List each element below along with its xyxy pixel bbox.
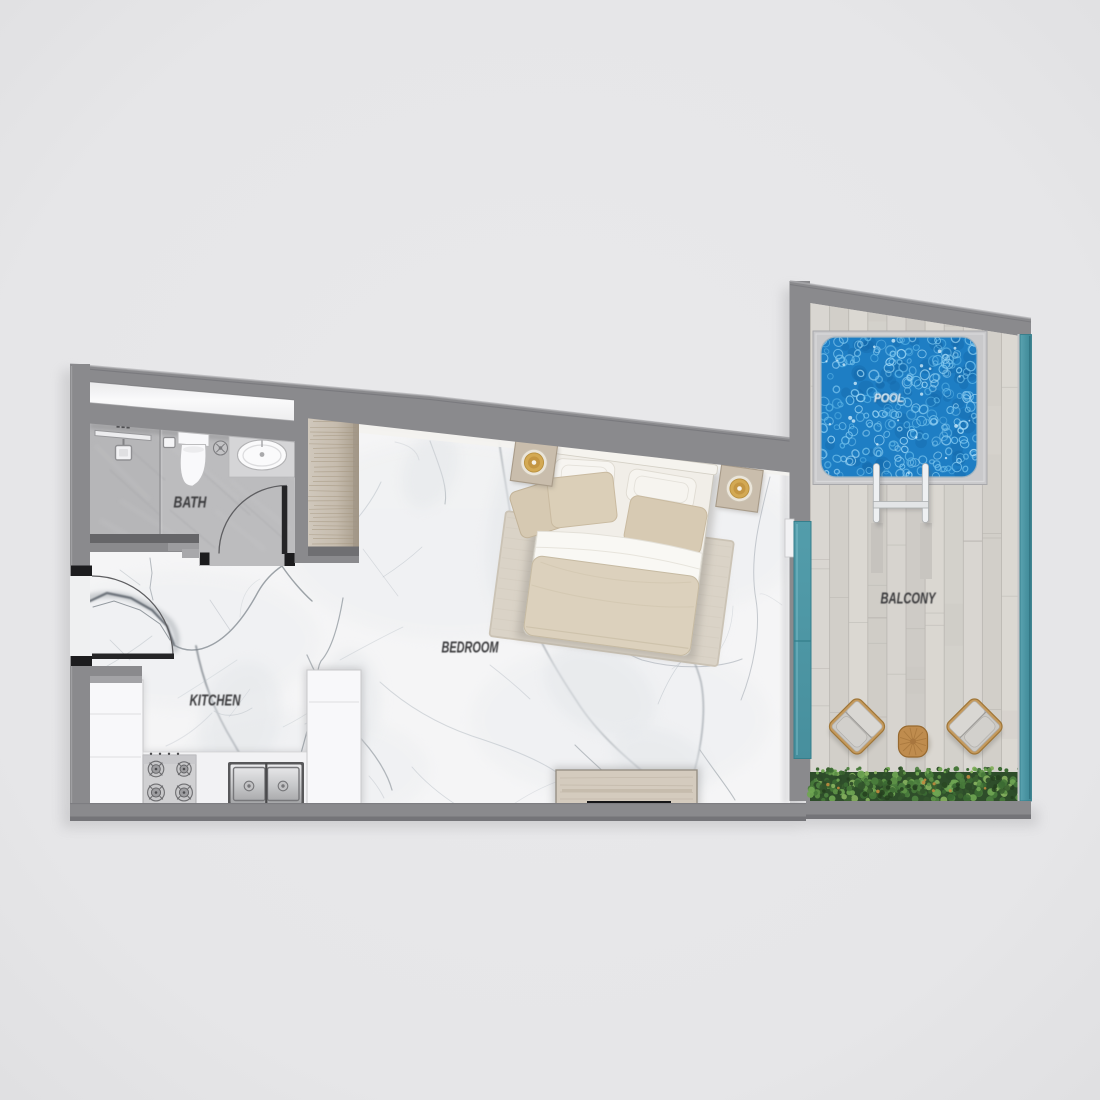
svg-text:BEDROOM: BEDROOM bbox=[442, 640, 499, 657]
svg-text:KITCHEN: KITCHEN bbox=[190, 693, 241, 710]
svg-text:BATH: BATH bbox=[174, 495, 207, 512]
svg-text:POOL: POOL bbox=[874, 391, 904, 405]
svg-text:BALCONY: BALCONY bbox=[881, 591, 937, 608]
